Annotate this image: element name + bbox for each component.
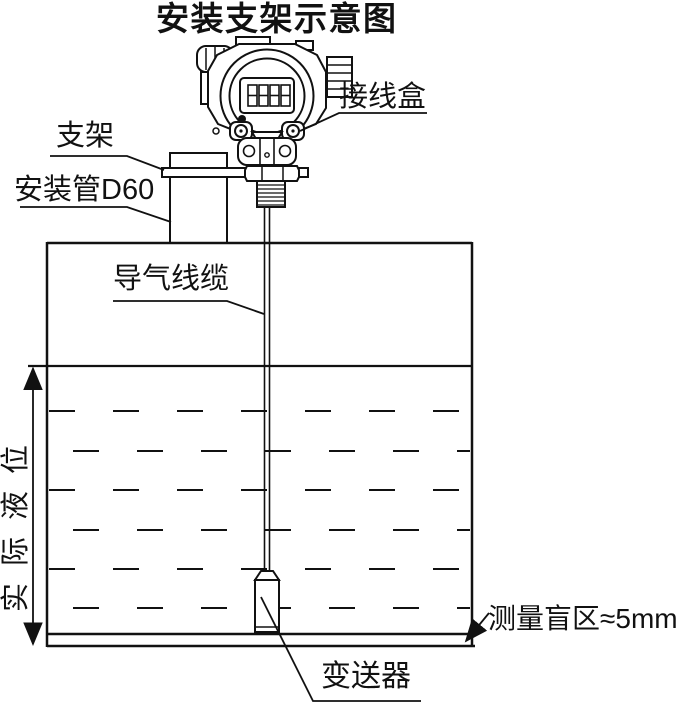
blind-zone-label: 测量盲区≈5mm <box>488 604 678 633</box>
transmitter-label: 变送器 <box>321 661 411 693</box>
blind-zone-arrow <box>466 613 489 641</box>
threaded-connection <box>257 181 285 207</box>
bracket-label: 支架 <box>56 121 114 151</box>
junction-box-label: 接线盒 <box>339 82 426 112</box>
cable-leader <box>113 301 264 314</box>
transmitter-head-drawing <box>197 37 352 207</box>
vent-cable-line <box>265 207 270 572</box>
lcd-display-icon <box>240 78 294 113</box>
bolt-dot <box>213 128 219 134</box>
probe-body <box>255 571 279 632</box>
vent-cable-label: 导气线缆 <box>113 264 229 294</box>
mounting-pipe <box>170 153 227 243</box>
bolt-dot <box>238 115 246 123</box>
liquid <box>28 366 471 608</box>
installation-diagram: 安装支架示意图 接线盒 支架 安装管D60 导气线缆 实际液位 测量盲区≈5mm… <box>0 0 700 708</box>
bracket-leader <box>50 156 164 170</box>
hex-nut <box>245 166 299 181</box>
process-connection-block <box>238 138 296 165</box>
diagram-title: 安装支架示意图 <box>156 2 398 37</box>
pipe-leader <box>20 207 171 222</box>
actual-level-label: 实际液位 <box>1 422 33 618</box>
mounting-pipe-label: 安装管D60 <box>14 175 154 205</box>
